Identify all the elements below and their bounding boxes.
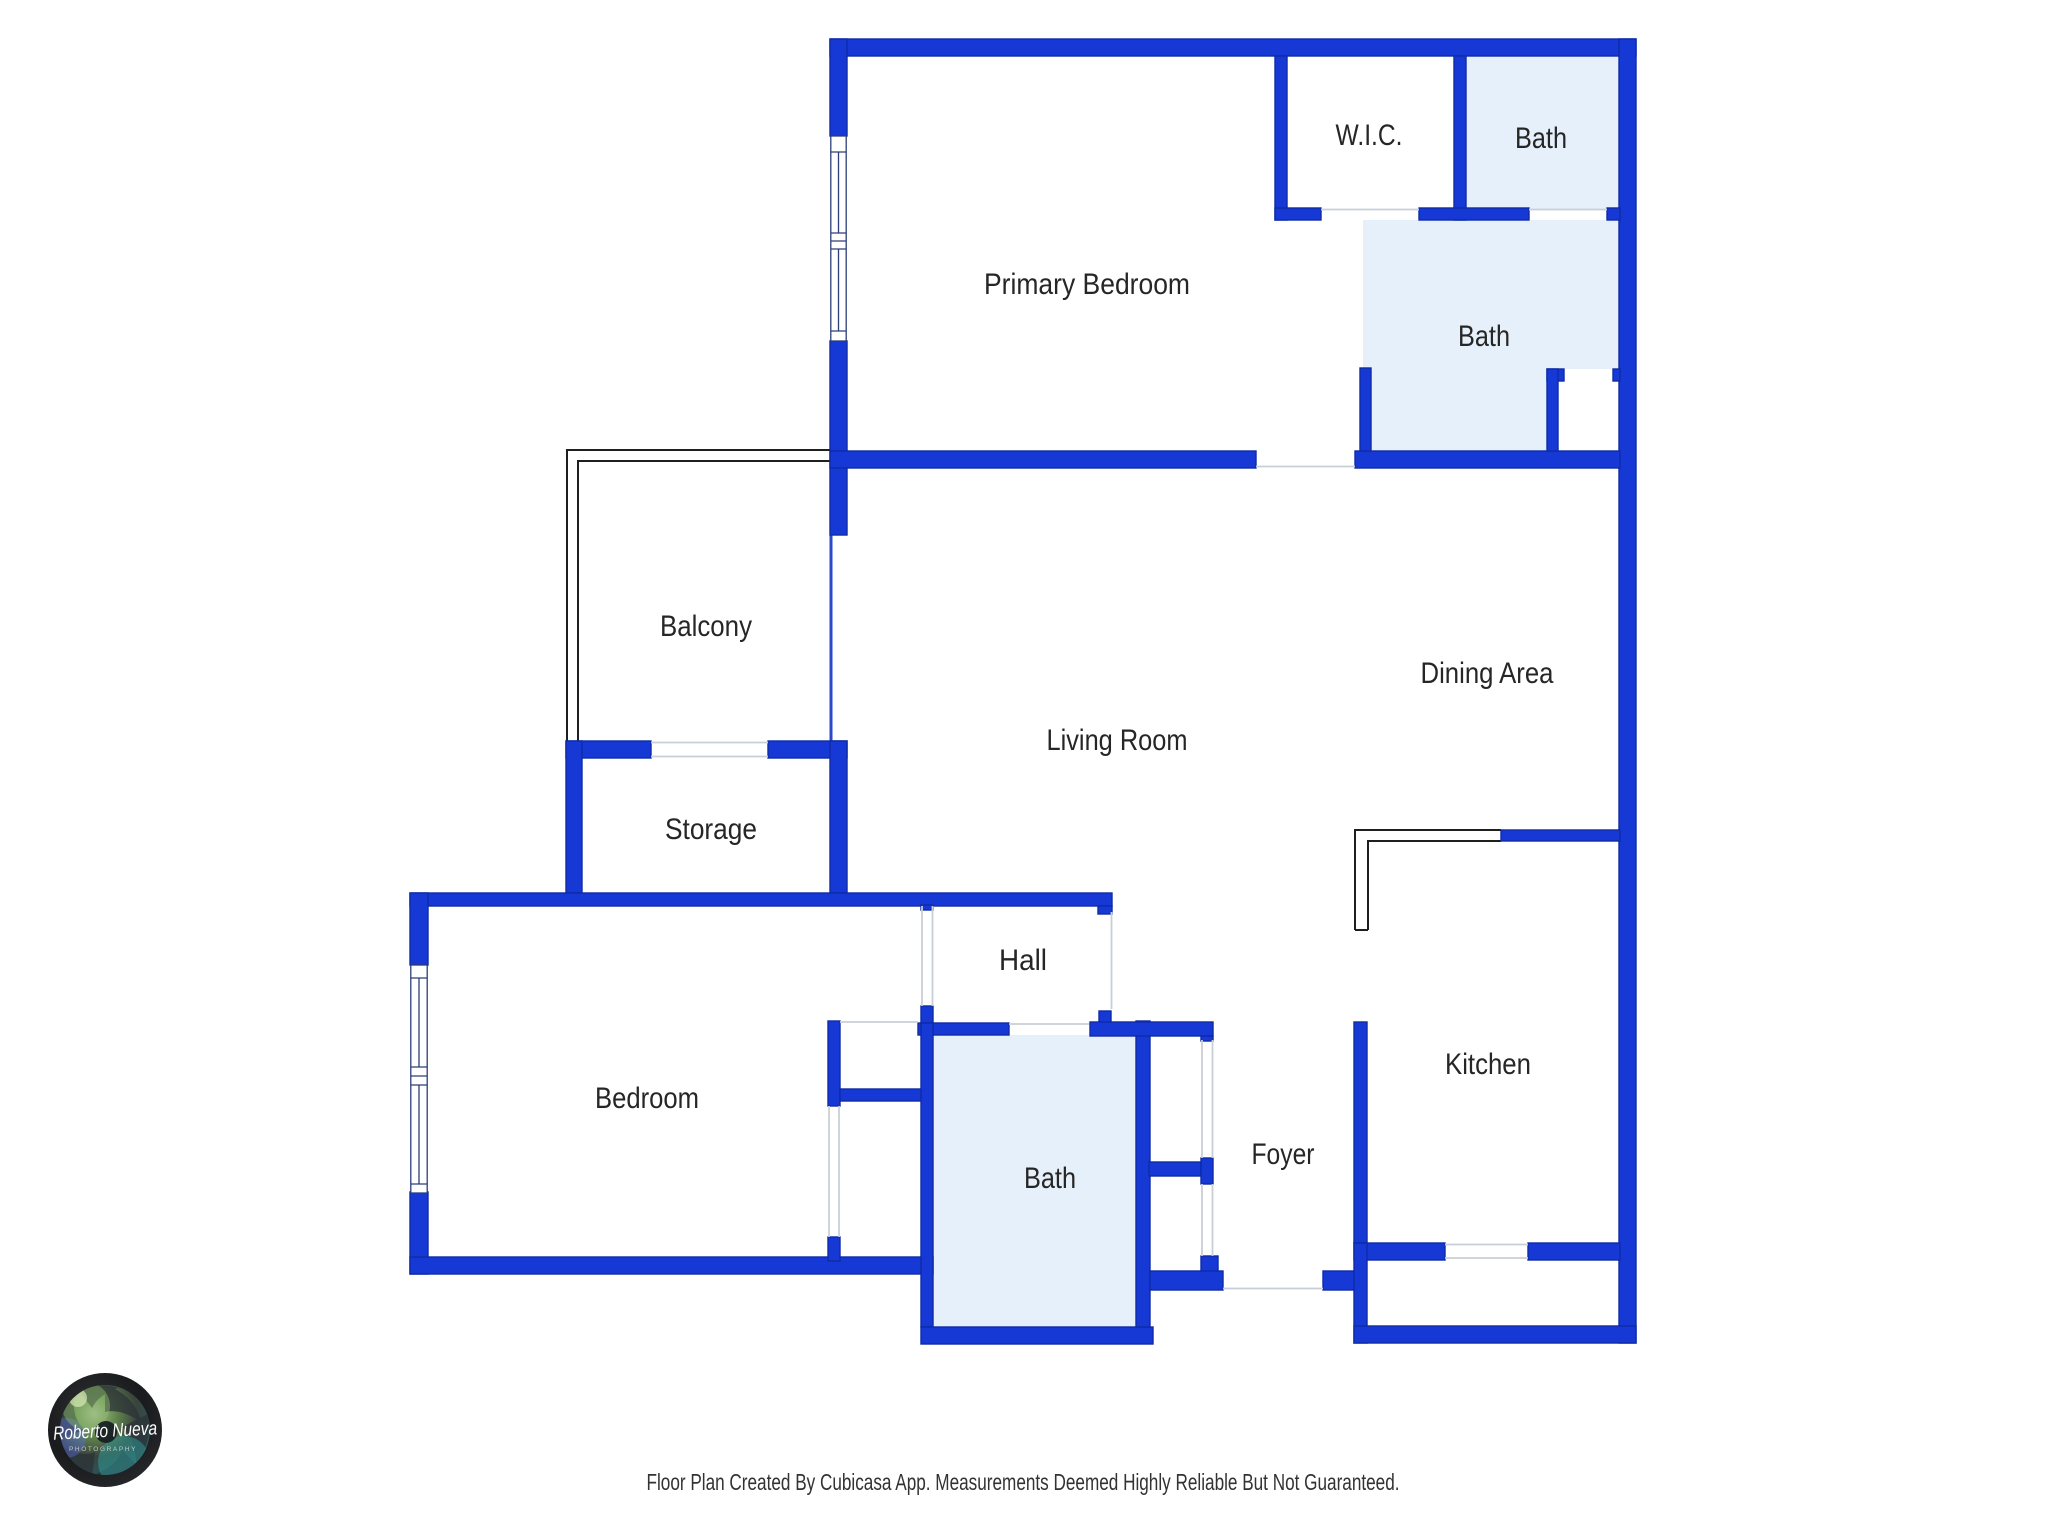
svg-text:Balcony: Balcony bbox=[660, 610, 752, 643]
svg-text:Bath: Bath bbox=[1458, 320, 1510, 353]
svg-text:Bath: Bath bbox=[1024, 1162, 1076, 1195]
svg-text:Dining Area: Dining Area bbox=[1421, 657, 1554, 690]
svg-text:Floor Plan Created By Cubicasa: Floor Plan Created By Cubicasa App. Meas… bbox=[647, 1469, 1400, 1495]
svg-text:Foyer: Foyer bbox=[1252, 1138, 1315, 1171]
svg-text:Living Room: Living Room bbox=[1047, 724, 1188, 757]
svg-text:Bath: Bath bbox=[1515, 122, 1567, 155]
svg-text:Storage: Storage bbox=[665, 813, 757, 846]
svg-text:Hall: Hall bbox=[999, 944, 1047, 977]
svg-text:Bedroom: Bedroom bbox=[595, 1082, 699, 1115]
svg-text:PHOTOGRAPHY: PHOTOGRAPHY bbox=[69, 1446, 137, 1453]
svg-text:Primary Bedroom: Primary Bedroom bbox=[984, 268, 1190, 301]
svg-text:Kitchen: Kitchen bbox=[1445, 1048, 1531, 1081]
svg-text:W.I.C.: W.I.C. bbox=[1336, 119, 1403, 152]
